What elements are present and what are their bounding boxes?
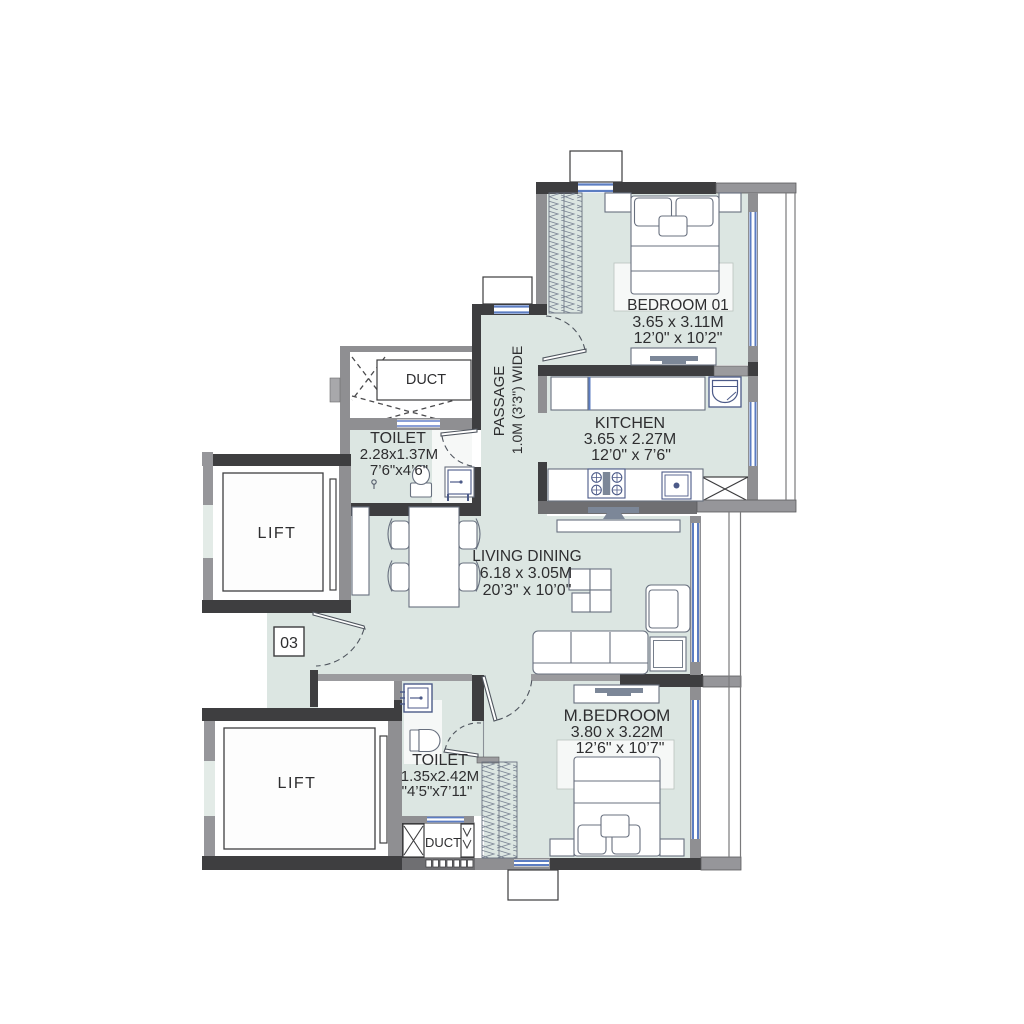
svg-text:6.18 x 3.05M: 6.18 x 3.05M (480, 565, 573, 582)
svg-text:03: 03 (280, 635, 298, 652)
svg-text:20’3" x 10’0": 20’3" x 10’0" (483, 582, 572, 599)
svg-text:LIFT: LIFT (278, 775, 317, 792)
svg-text:2.28x1.37M: 2.28x1.37M (360, 446, 438, 463)
svg-text:LIFT: LIFT (258, 525, 297, 542)
svg-text:KITCHEN: KITCHEN (595, 415, 665, 432)
svg-text:TOILET: TOILET (412, 752, 468, 769)
svg-text:"4’5"x7’11": "4’5"x7’11" (402, 783, 473, 800)
svg-text:7’6"x4’6": 7’6"x4’6" (370, 462, 428, 479)
svg-text:12’0" x 10’2": 12’0" x 10’2" (634, 330, 723, 347)
svg-text:TOILET: TOILET (370, 430, 426, 447)
svg-text:DUCT: DUCT (425, 835, 461, 850)
svg-text:12’0" x 7’6": 12’0" x 7’6" (591, 447, 671, 464)
svg-text:BEDROOM 01: BEDROOM 01 (627, 297, 729, 314)
svg-text:1.0M (3’3") WIDE: 1.0M (3’3") WIDE (509, 346, 525, 454)
svg-text:3.65 x 3.11M: 3.65 x 3.11M (632, 314, 723, 331)
svg-text:3.80 x 3.22M: 3.80 x 3.22M (571, 724, 664, 741)
svg-text:12’6" x 10’7": 12’6" x 10’7" (576, 740, 665, 757)
svg-text:PASSAGE: PASSAGE (491, 366, 508, 437)
svg-text:DUCT: DUCT (406, 372, 446, 388)
svg-text:M.BEDROOM: M.BEDROOM (564, 706, 671, 725)
svg-text:LIVING DINING: LIVING DINING (472, 548, 581, 565)
svg-text:3.65 x 2.27M: 3.65 x 2.27M (584, 431, 677, 448)
